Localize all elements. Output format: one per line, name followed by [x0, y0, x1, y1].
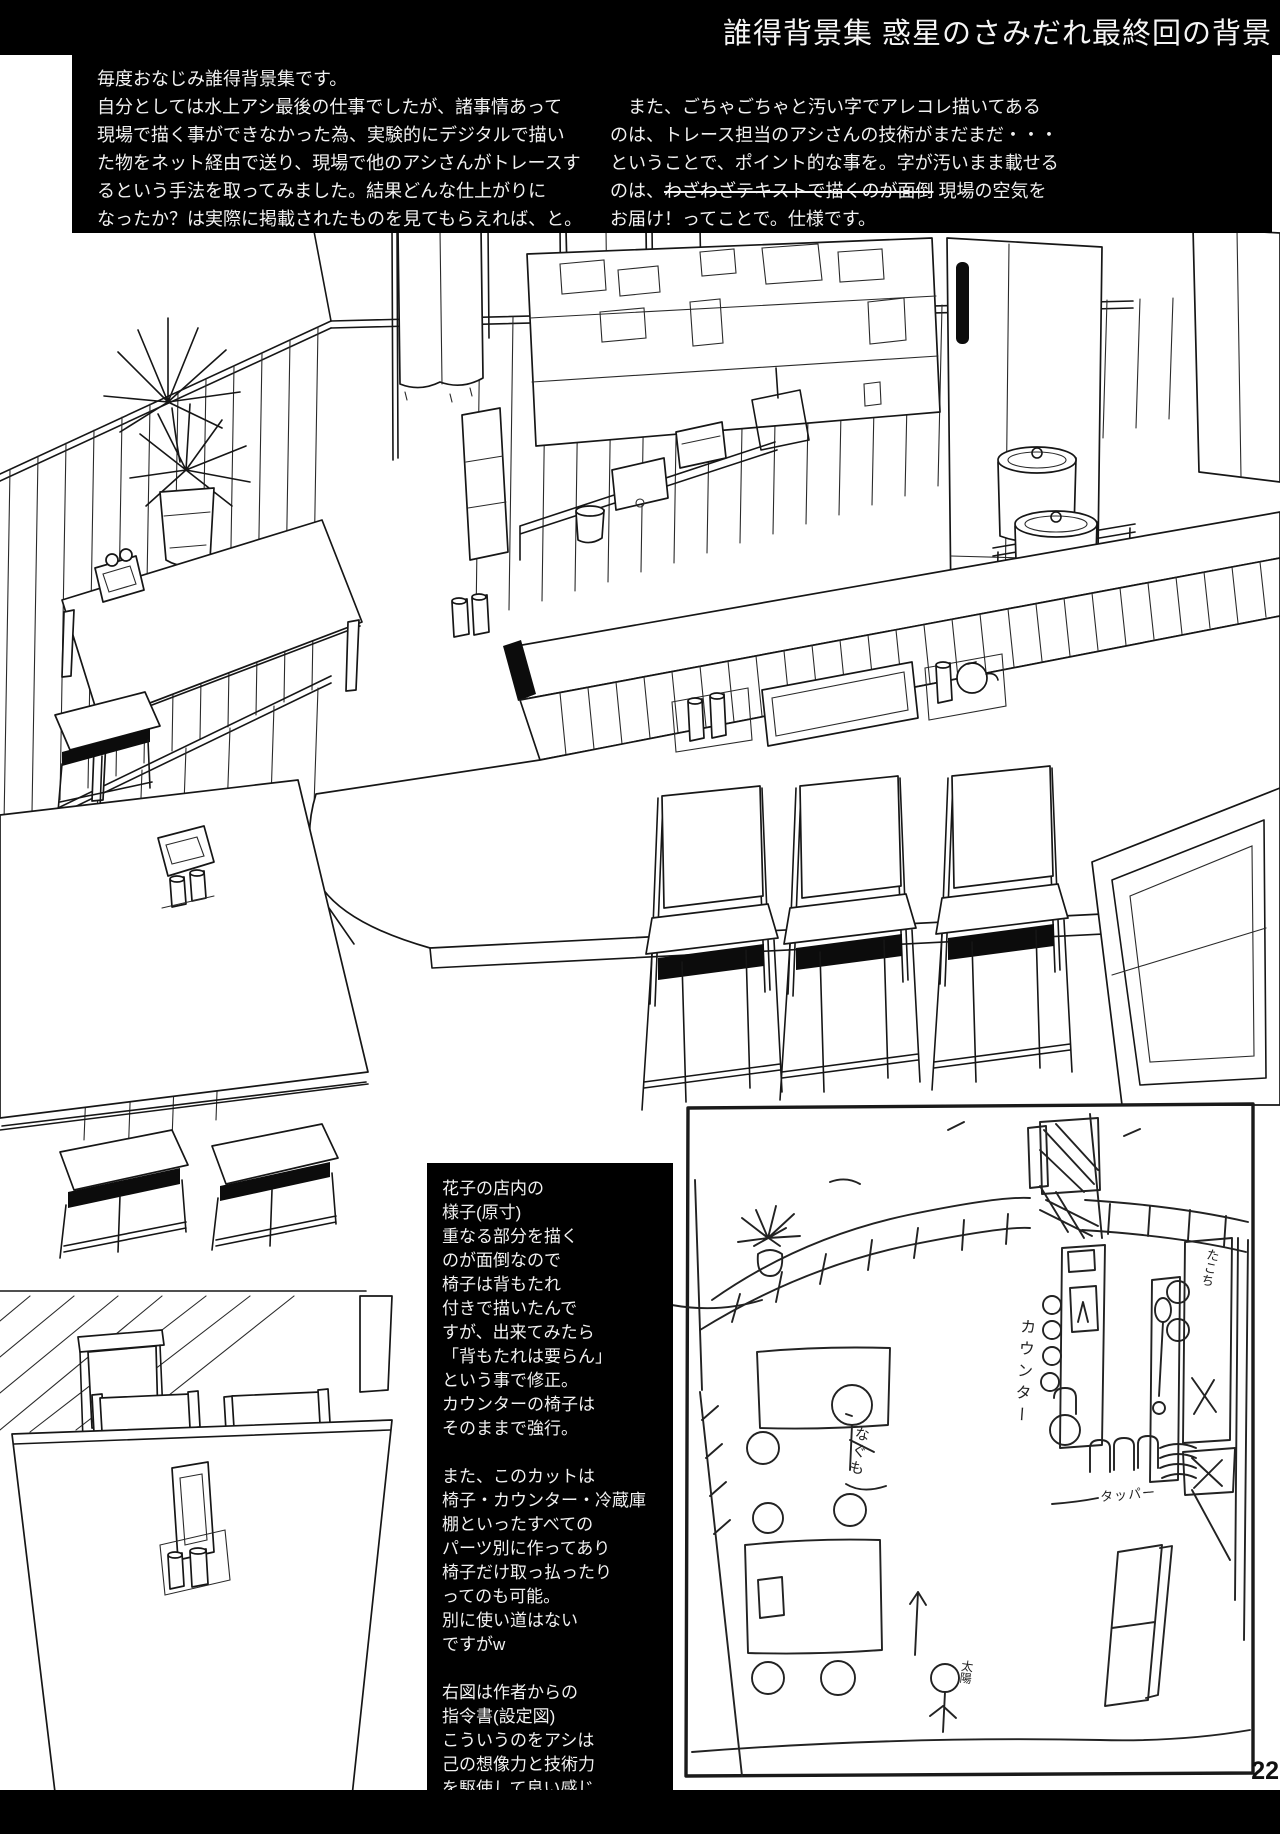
struck-text: わざわざテキストで描くのが面倒 — [664, 181, 933, 201]
intro-left-text: 毎度おなじみ誰得背景集です。 自分としては水上アシ最後の仕事でしたが、諸事情あっ… — [97, 65, 582, 233]
small-table — [62, 520, 362, 801]
bottom-bar — [0, 1790, 1280, 1834]
intro-right-text: また、ごちゃごちゃと汚い字でアレコレ描いてある のは、トレース担当のアシさんの技… — [610, 93, 1059, 233]
author-note-panel: 花子の店内の 様子(原寸) 重なる部分を描く のが面倒なので 椅子は背もたれ 付… — [427, 1163, 673, 1834]
page-title: 誰得背景集 惑星のさみだれ最終回の背景 — [723, 10, 1272, 52]
tall-cabinet — [1193, 228, 1280, 482]
second-cut — [0, 1291, 392, 1834]
counter-chair — [642, 786, 782, 1110]
wall-shelf-unit — [527, 238, 940, 450]
layout-sketch — [610, 1104, 1253, 1776]
potted-plant — [104, 318, 250, 566]
intro-panel: 毎度おなじみ誰得背景集です。 自分としては水上アシ最後の仕事でしたが、諸事情あっ… — [72, 55, 1272, 233]
header-bar: 誰得背景集 惑星のさみだれ最終回の背景 — [0, 0, 1280, 55]
stool — [60, 1130, 188, 1258]
page-number: 22 — [1251, 1757, 1279, 1786]
counter-chair — [932, 766, 1072, 1090]
counter-chair — [780, 776, 920, 1100]
stool — [212, 1124, 338, 1250]
sketch-label-sun: 太陽 — [957, 1659, 977, 1685]
doujin-artbook-page: 誰得背景集 惑星のさみだれ最終回の背景 毎度おなじみ誰得背景集です。 自分として… — [0, 0, 1280, 1834]
